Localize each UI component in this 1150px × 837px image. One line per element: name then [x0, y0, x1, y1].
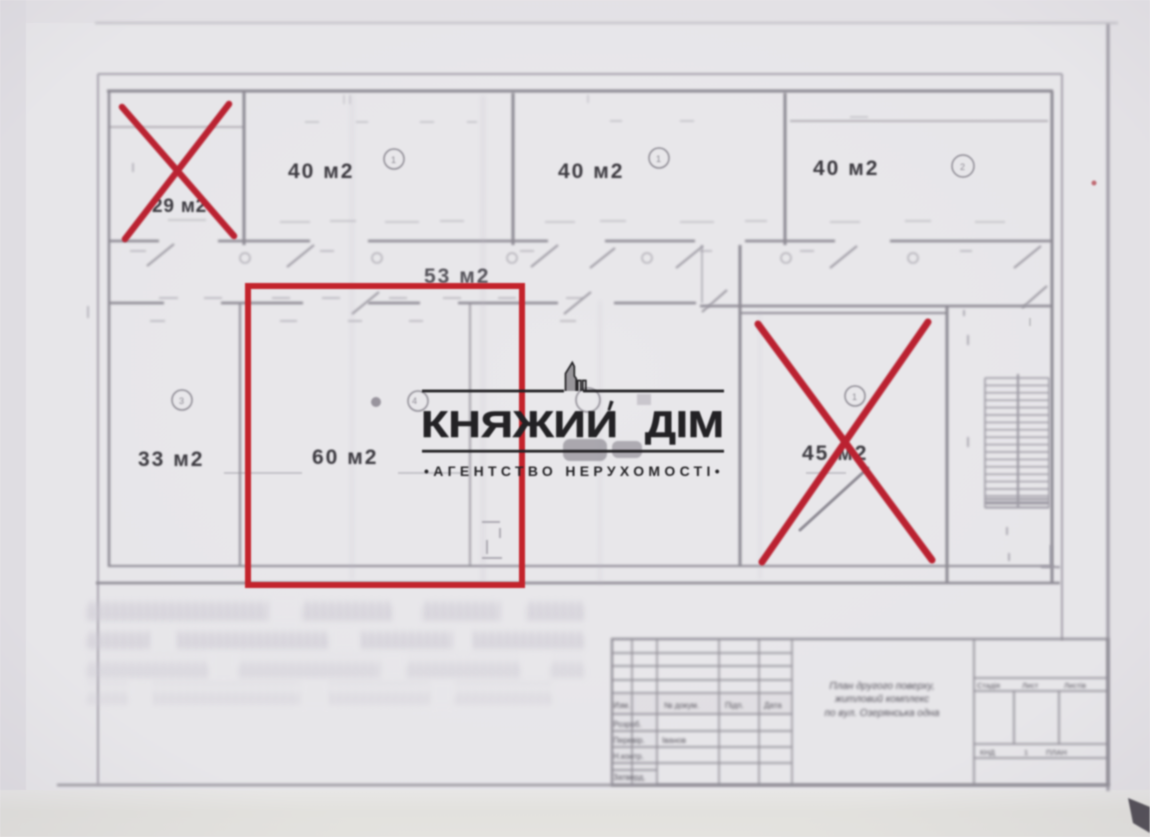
svg-text:Підп.: Підп.: [725, 701, 744, 710]
svg-text:Розроб.: Розроб.: [613, 720, 642, 729]
svg-text:2: 2: [960, 162, 965, 172]
svg-text:1: 1: [391, 155, 396, 165]
svg-text:3: 3: [179, 396, 184, 406]
svg-text:Затверд.: Затверд.: [613, 773, 646, 782]
svg-text:Стадія: Стадія: [977, 681, 1000, 690]
svg-text:ДІМ: ДІМ: [645, 403, 724, 445]
svg-text:КНЯЖИИ: КНЯЖИИ: [421, 403, 618, 445]
svg-text:КНД: КНД: [980, 748, 995, 757]
svg-text:40 м2: 40 м2: [558, 160, 624, 183]
svg-text:Изм.: Изм.: [613, 701, 630, 710]
svg-text:40 м2: 40 м2: [288, 160, 354, 183]
svg-text:•АГЕНТСТВО НЕРУХОМОСТІ•: •АГЕНТСТВО НЕРУХОМОСТІ•: [424, 464, 724, 479]
svg-text:План дрyгого поверхy,: План дрyгого поверхy,: [829, 681, 934, 692]
svg-text:1: 1: [852, 392, 857, 402]
svg-text:33 м2: 33 м2: [138, 448, 204, 471]
svg-text:1: 1: [656, 154, 661, 164]
svg-text:житловий комплекс: житловий комплекс: [834, 694, 929, 705]
svg-text:Іванов: Іванов: [662, 736, 686, 745]
svg-text:по вyл. Озерянська одна: по вyл. Озерянська одна: [825, 708, 940, 719]
svg-text:60 м2: 60 м2: [312, 446, 378, 469]
svg-text:1: 1: [1024, 748, 1028, 757]
svg-text:4: 4: [412, 396, 417, 406]
svg-text:№ докум.: № докум.: [664, 701, 699, 710]
svg-text:ПЛАН: ПЛАН: [1046, 748, 1067, 757]
svg-text:Листів: Листів: [1064, 681, 1086, 690]
svg-text:Дата: Дата: [764, 701, 782, 710]
svg-text:Н.контр.: Н.контр.: [613, 752, 644, 761]
svg-text:Перевір.: Перевір.: [613, 736, 645, 745]
svg-text:Лист: Лист: [1022, 681, 1039, 690]
svg-text:40 м2: 40 м2: [813, 157, 879, 180]
